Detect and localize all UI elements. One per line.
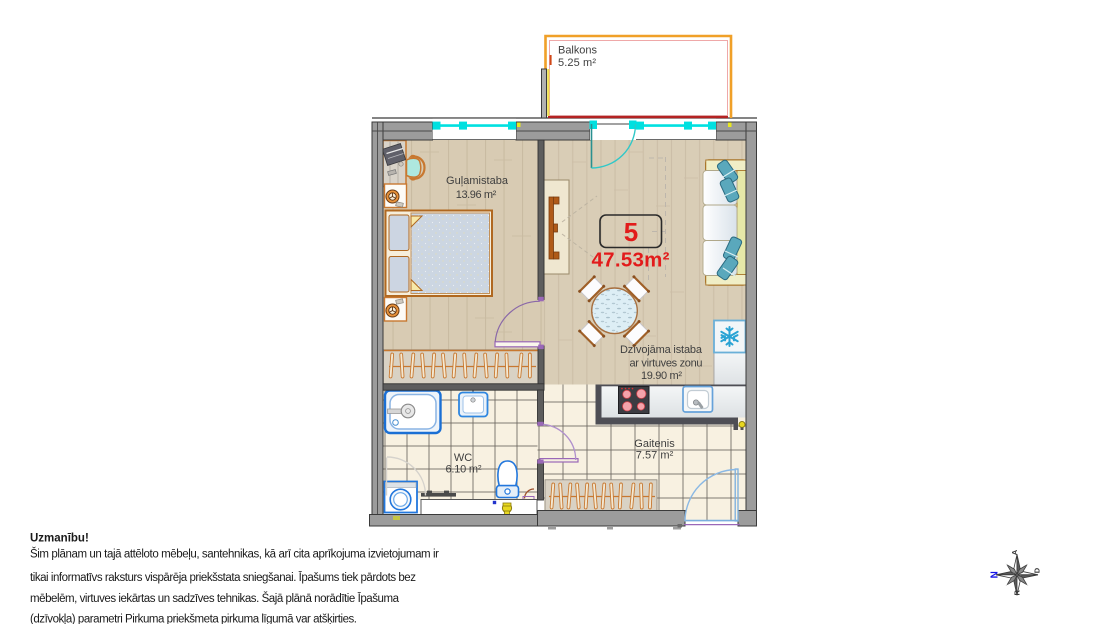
svg-text:Guļamistaba: Guļamistaba (446, 175, 509, 187)
svg-text:(dzīvokļa) parametri Pirkuma p: (dzīvokļa) parametri Pirkuma priekšmeta … (30, 614, 357, 624)
svg-text:A: A (1010, 549, 1019, 555)
svg-text:N: N (990, 571, 1001, 578)
svg-text:tikai informatīvs raksturs vis: tikai informatīvs raksturs vispārēja pri… (30, 572, 416, 584)
svg-text:ar virtuves zonu: ar virtuves zonu (630, 358, 703, 370)
svg-text:7.57 m²: 7.57 m² (636, 449, 674, 461)
svg-text:mēbelēm, virtuves iekārtas un: mēbelēm, virtuves iekārtas un sadzīves t… (30, 592, 400, 605)
svg-text:D: D (1032, 567, 1041, 573)
svg-text:47.53m²: 47.53m² (592, 249, 670, 272)
svg-text:Balkons: Balkons (558, 45, 598, 57)
svg-text:6.10 m²: 6.10 m² (446, 464, 482, 476)
svg-text:Dzīvojāma istaba: Dzīvojāma istaba (620, 344, 703, 356)
svg-text:Šim plānam un tajā attēloto mē: Šim plānam un tajā attēloto mēbeļu, sant… (30, 548, 439, 561)
svg-text:WC: WC (454, 452, 472, 464)
svg-text:5: 5 (624, 217, 638, 247)
svg-text:Uzmanību!: Uzmanību! (30, 533, 89, 545)
svg-text:Gaitenis: Gaitenis (634, 438, 675, 450)
svg-text:13.96 m²: 13.96 m² (456, 189, 497, 201)
svg-text:R: R (1012, 590, 1021, 596)
svg-text:19.90 m²: 19.90 m² (641, 370, 682, 382)
svg-text:5.25 m²: 5.25 m² (558, 57, 596, 69)
